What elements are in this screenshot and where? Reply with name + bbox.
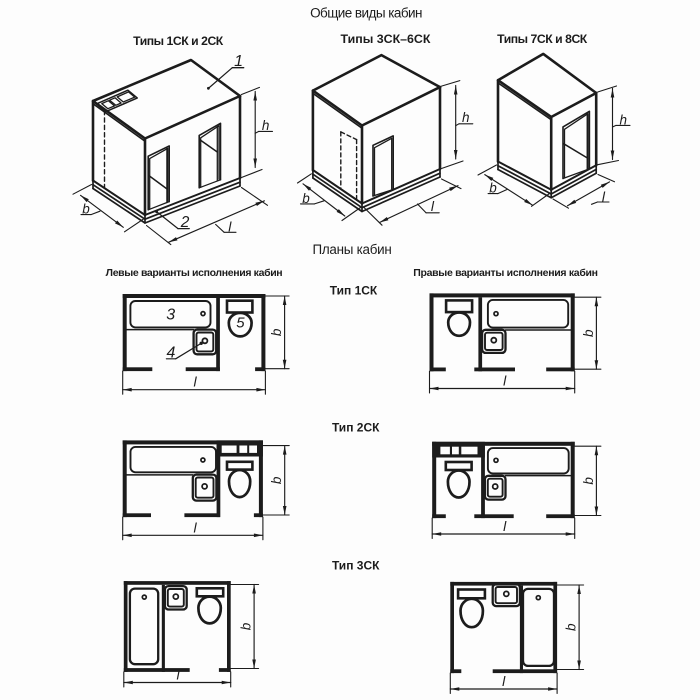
svg-text:Тип 3СК: Тип 3СК: [332, 559, 380, 573]
svg-text:Типы 1СК и 2СК: Типы 1СК и 2СК: [133, 34, 224, 48]
svg-text:Типы 7СК и 8СК: Типы 7СК и 8СК: [497, 32, 588, 46]
svg-text:b: b: [269, 328, 284, 336]
svg-text:Типы 3СК–6СК: Типы 3СК–6СК: [341, 32, 431, 46]
svg-text:b: b: [564, 623, 579, 631]
svg-text:h: h: [619, 112, 627, 127]
svg-text:b: b: [302, 191, 310, 206]
svg-text:Левые варианты исполнения каби: Левые варианты исполнения кабин: [106, 267, 283, 279]
svg-text:b: b: [581, 477, 596, 485]
svg-text:h: h: [462, 110, 470, 125]
svg-text:Правые варианты исполнения каб: Правые варианты исполнения кабин: [413, 267, 597, 279]
svg-text:Общие виды кабин: Общие виды кабин: [310, 6, 422, 21]
svg-text:b: b: [581, 329, 596, 337]
svg-text:5: 5: [236, 315, 245, 332]
svg-text:h: h: [262, 118, 270, 133]
svg-text:Тип 1СК: Тип 1СК: [330, 284, 378, 298]
svg-text:Планы кабин: Планы кабин: [312, 242, 391, 257]
svg-text:b: b: [269, 476, 284, 484]
svg-text:b: b: [239, 622, 254, 630]
svg-text:b: b: [82, 201, 90, 216]
svg-text:3: 3: [166, 306, 175, 323]
svg-text:b: b: [489, 181, 497, 196]
svg-text:Тип 2СК: Тип 2СК: [332, 421, 380, 435]
